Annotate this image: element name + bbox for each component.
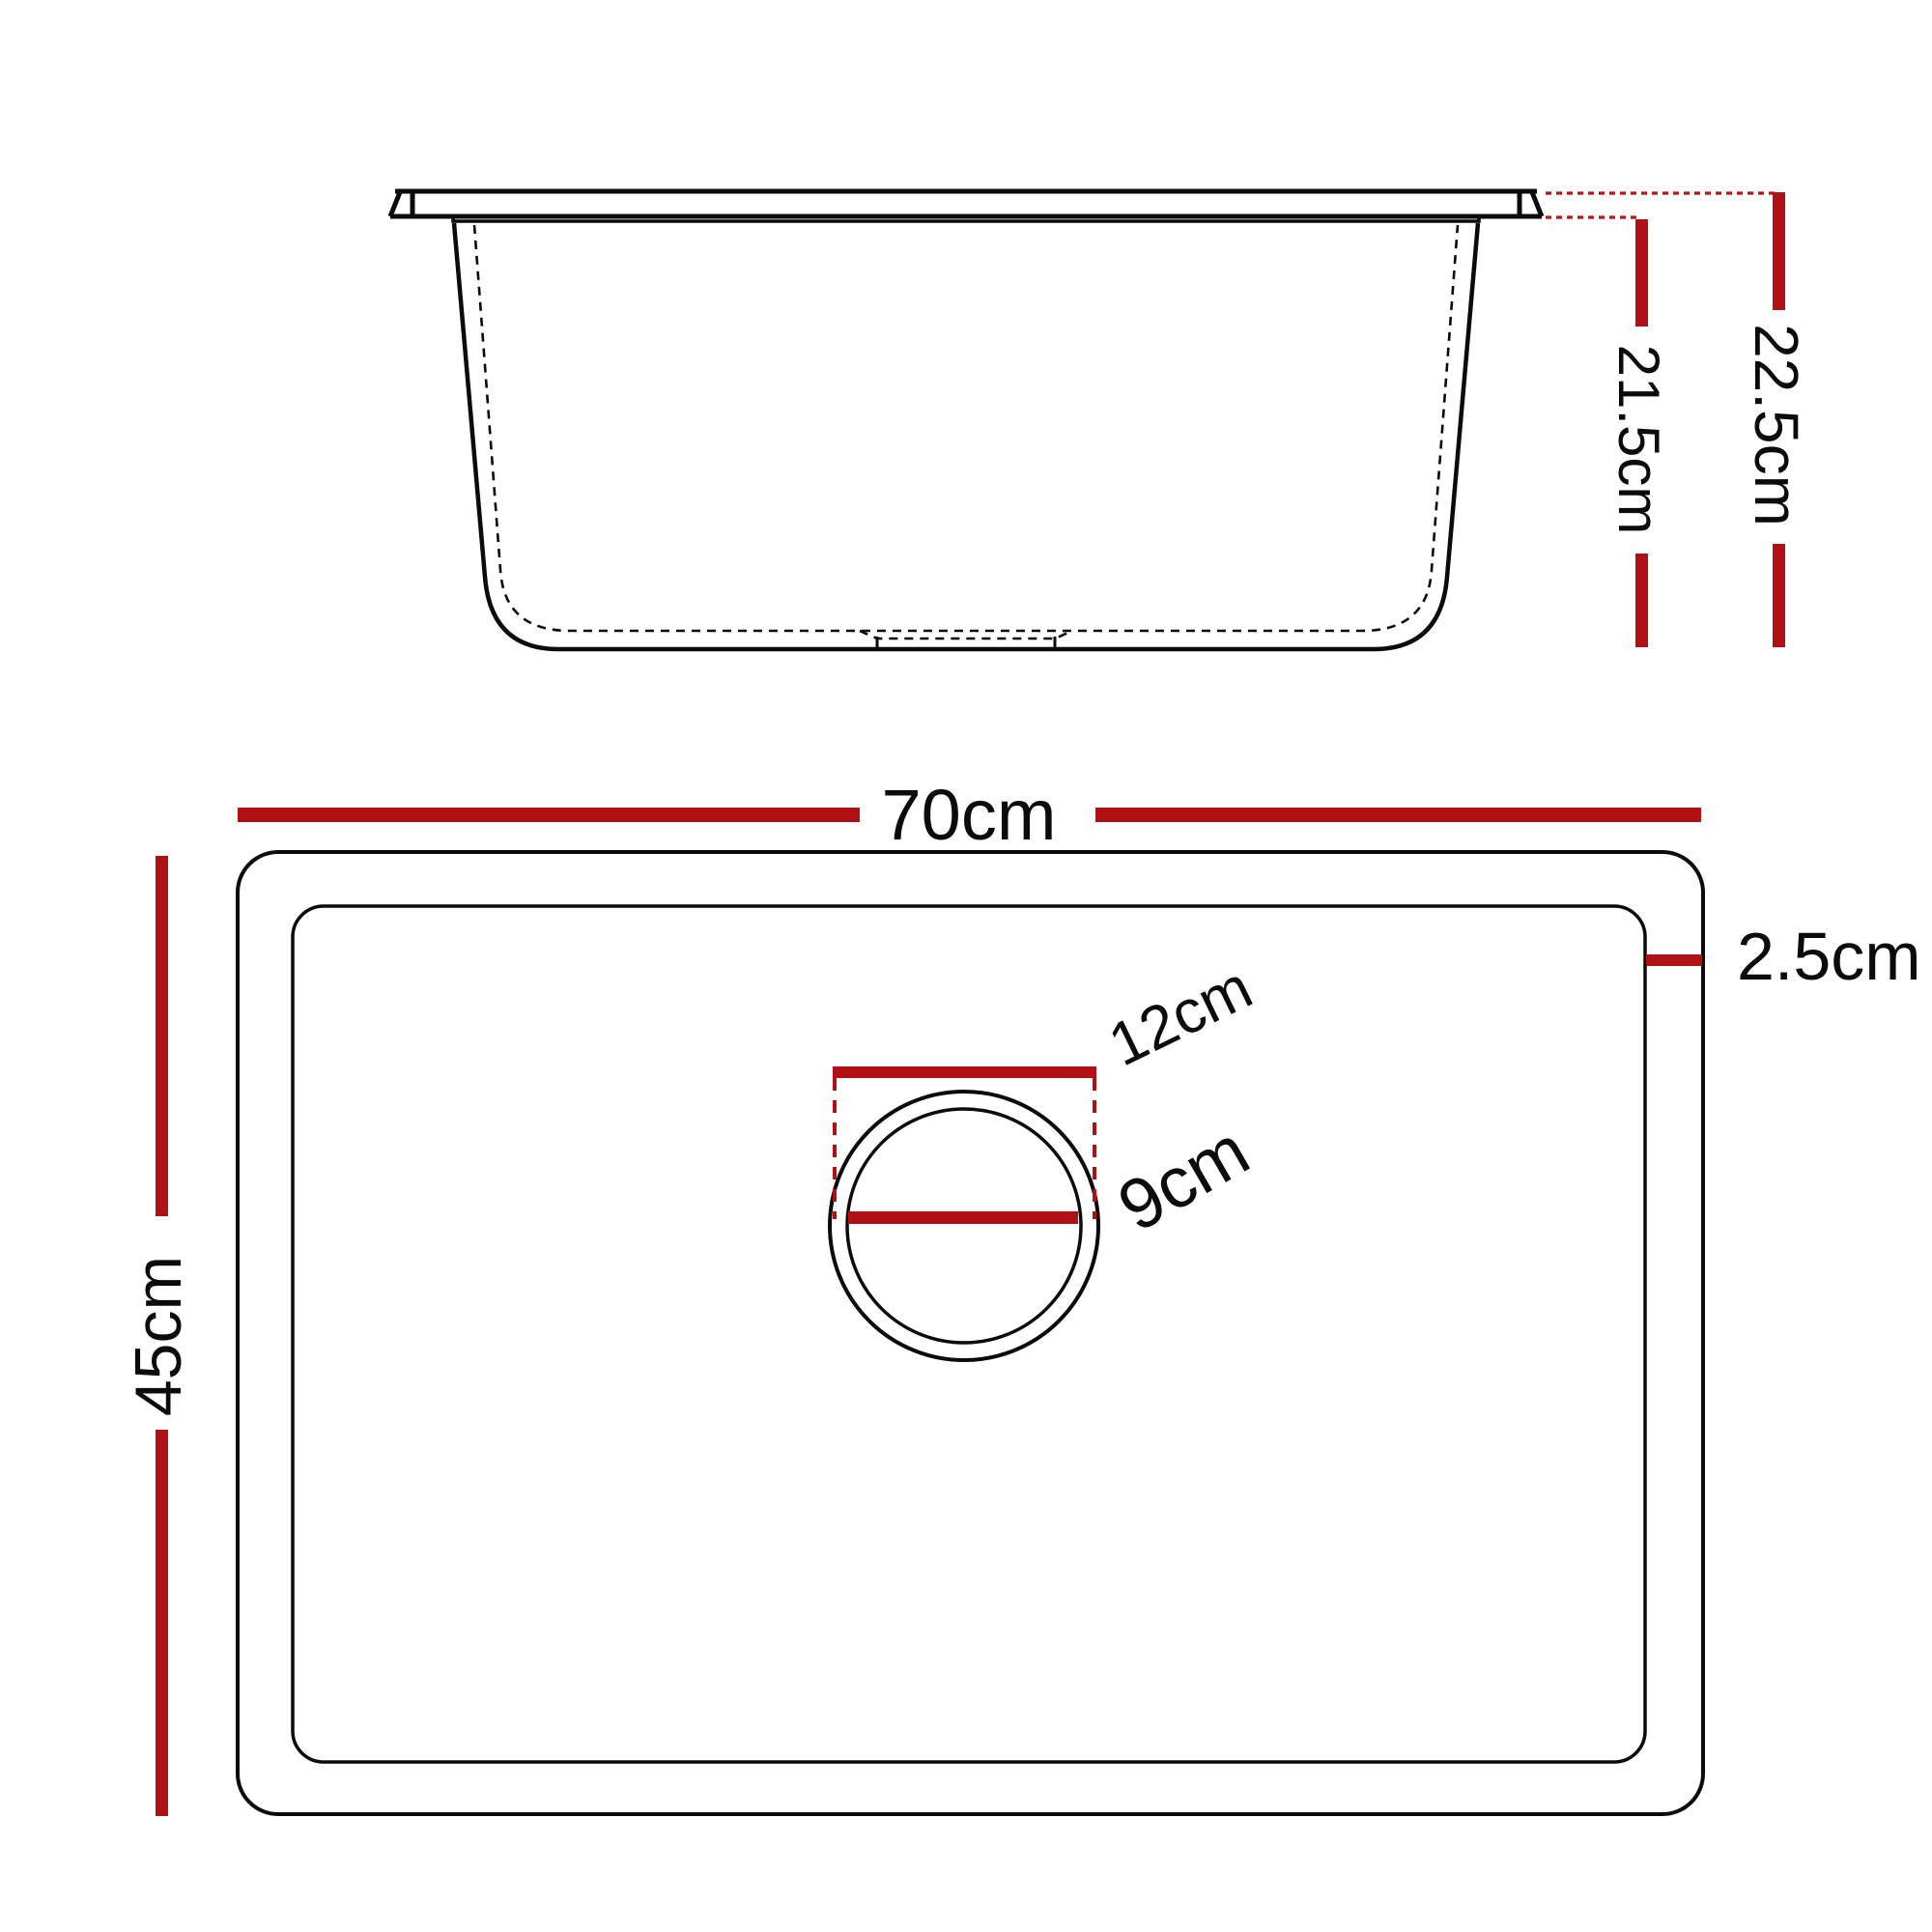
svg-text:70cm: 70cm [882,775,1057,855]
svg-text:22.5cm: 22.5cm [1742,324,1811,526]
svg-text:21.5cm: 21.5cm [1606,345,1671,535]
svg-text:45cm: 45cm [122,1256,195,1416]
svg-text:2.5cm: 2.5cm [1737,919,1921,994]
